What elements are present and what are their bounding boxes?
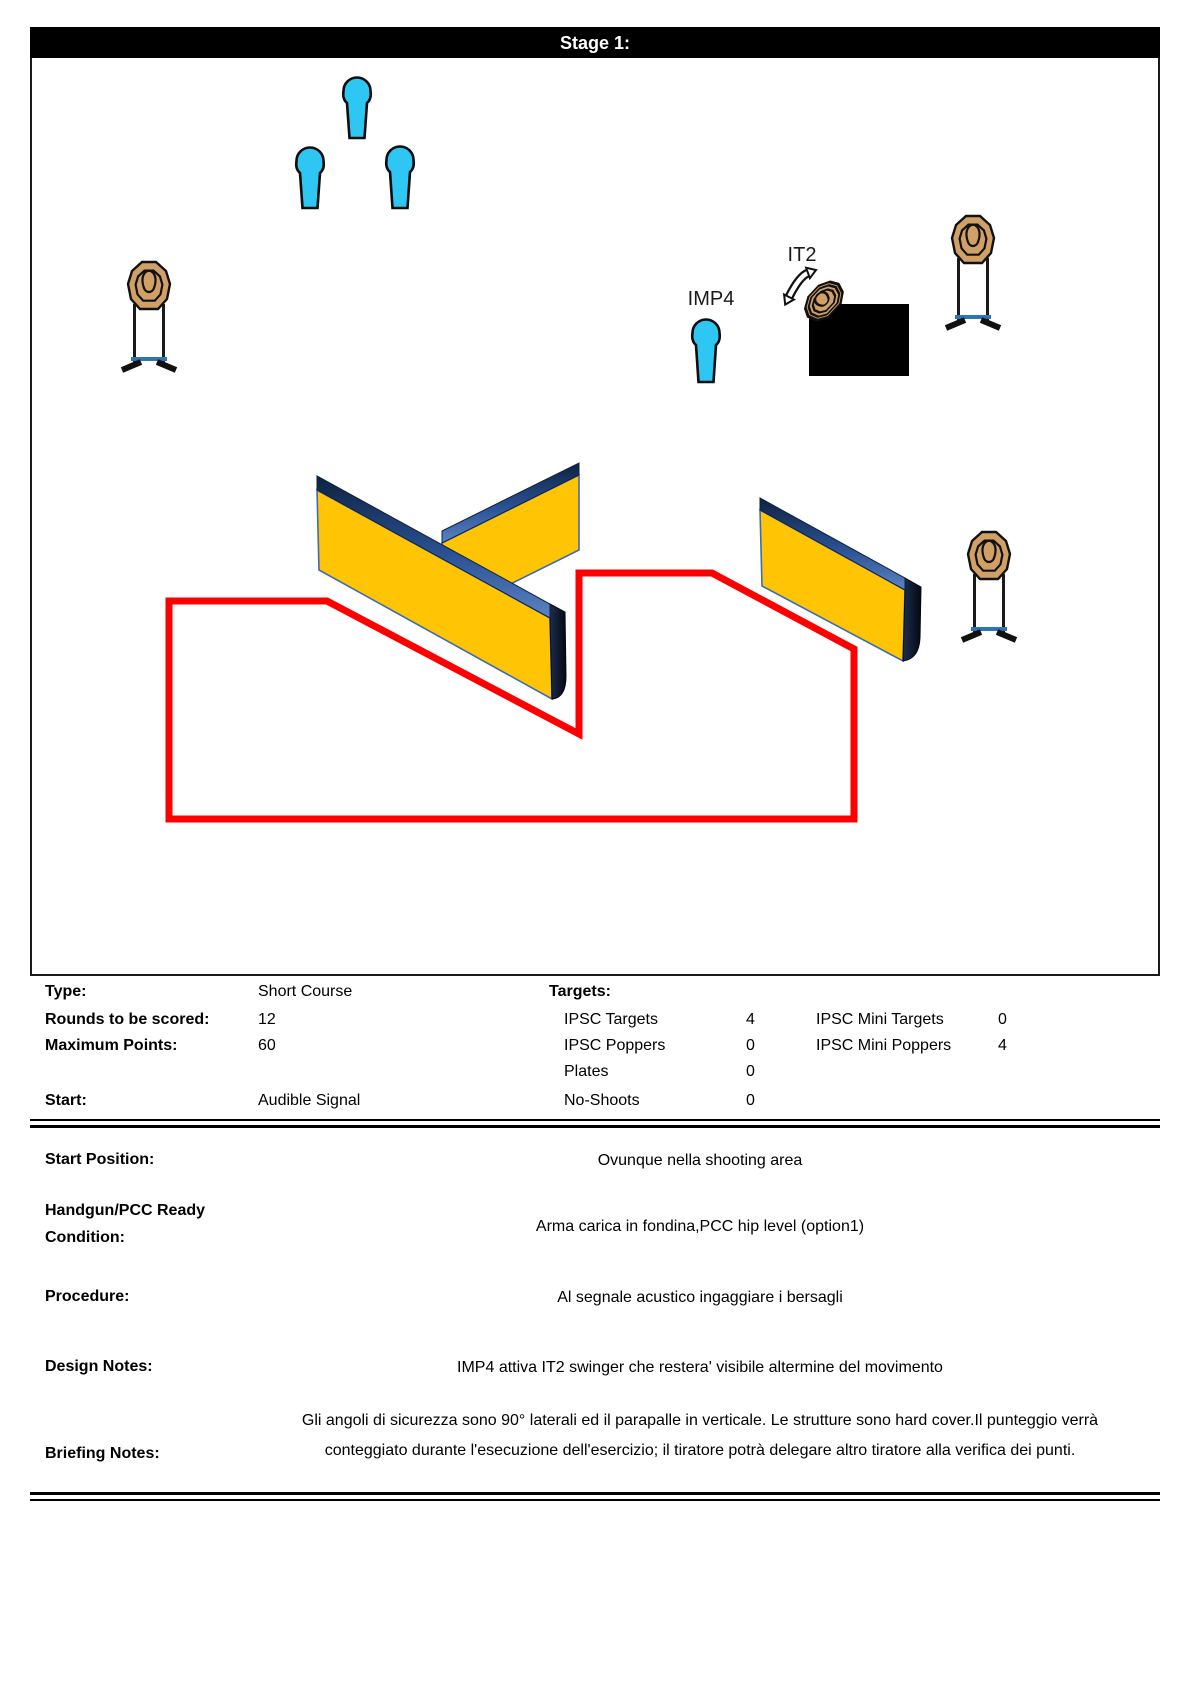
plates-value: 0: [746, 1063, 755, 1081]
stage-briefing-page: Stage 1: IMP4IT2 Type:: [0, 0, 1191, 1684]
start-label: Start:: [45, 1092, 87, 1110]
separator-bottom: [30, 1492, 1160, 1501]
mini-target-right-top: [946, 216, 1000, 328]
table-row-start: Start: Audible Signal No-Shoots 0: [0, 1092, 1191, 1114]
table-row-type: Type: Short Course Targets:: [0, 983, 1191, 1005]
rounds-value: 12: [258, 1011, 276, 1029]
no-shoots-value: 0: [746, 1092, 755, 1110]
stage-diagram: IMP4IT2: [32, 58, 1158, 972]
stage-sheet: Stage 1: IMP4IT2: [30, 27, 1160, 976]
design-notes-value: IMP4 attiva IT2 swinger che restera' vis…: [250, 1353, 1150, 1383]
ipsc-poppers-label: IPSC Poppers: [564, 1037, 665, 1055]
briefing-notes-label: Briefing Notes:: [45, 1440, 250, 1467]
label-imp4: IMP4: [688, 288, 735, 310]
wall-right: [760, 498, 921, 661]
table-row-plates: Plates 0: [0, 1063, 1191, 1085]
ipsc-targets-value: 4: [746, 1011, 755, 1029]
procedure-label: Procedure:: [45, 1283, 250, 1310]
mini-popper-1: [343, 78, 371, 139]
ipsc-targets-label: IPSC Targets: [564, 1011, 658, 1029]
ready-condition-label: Handgun/PCC Ready Condition:: [45, 1197, 250, 1251]
procedure-value: Al segnale acustico ingaggiare i bersagl…: [250, 1283, 1150, 1313]
targets-header: Targets:: [549, 983, 611, 1001]
design-notes-label: Design Notes:: [45, 1353, 250, 1380]
ipsc-mini-poppers-label: IPSC Mini Poppers: [816, 1037, 951, 1055]
stage-title: Stage 1:: [560, 33, 630, 53]
label-it2: IT2: [788, 244, 817, 266]
max-points-label: Maximum Points:: [45, 1037, 177, 1055]
start-value: Audible Signal: [258, 1092, 360, 1110]
briefing-notes-value: Gli angoli di sicurezza sono 90° lateral…: [295, 1406, 1105, 1466]
stage-diagram-box: IMP4IT2: [30, 58, 1160, 976]
ipsc-mini-targets-label: IPSC Mini Targets: [816, 1011, 944, 1029]
mini-target-left: [122, 262, 176, 370]
mini-popper-2: [296, 148, 324, 209]
no-shoots-label: No-Shoots: [564, 1092, 640, 1110]
type-value: Short Course: [258, 983, 352, 1001]
start-position-label: Start Position:: [45, 1146, 250, 1173]
rounds-label: Rounds to be scored:: [45, 1011, 209, 1029]
mini-target-right-bottom: [962, 532, 1016, 640]
ipsc-poppers-value: 0: [746, 1037, 755, 1055]
separator-top: [30, 1119, 1160, 1128]
type-label: Type:: [45, 983, 86, 1001]
start-position-value: Ovunque nella shooting area: [250, 1146, 1150, 1176]
it2-swinger: [784, 268, 909, 376]
mini-popper-3: [386, 147, 414, 209]
stage-title-bar: Stage 1:: [30, 27, 1160, 58]
mini-popper-imp4: [692, 320, 720, 383]
max-points-value: 60: [258, 1037, 276, 1055]
plates-label: Plates: [564, 1063, 608, 1081]
table-row-rounds: Rounds to be scored: 12 IPSC Targets 4 I…: [0, 1011, 1191, 1033]
ipsc-mini-targets-value: 0: [998, 1011, 1007, 1029]
table-row-max-points: Maximum Points: 60 IPSC Poppers 0 IPSC M…: [0, 1037, 1191, 1059]
ready-condition-value: Arma carica in fondina,PCC hip level (op…: [250, 1212, 1150, 1242]
ipsc-mini-poppers-value: 4: [998, 1037, 1007, 1055]
